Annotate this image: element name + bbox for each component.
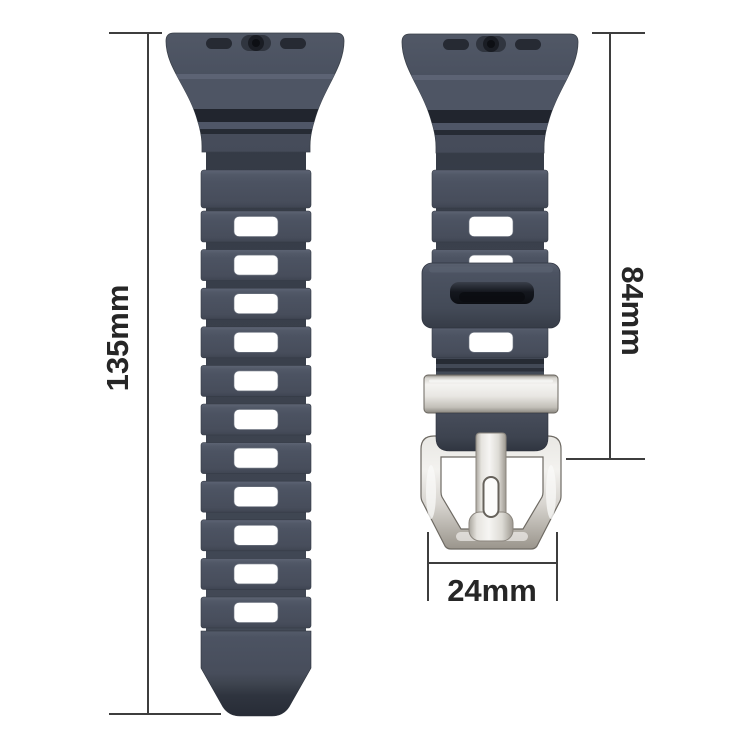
long-strap-segments bbox=[201, 211, 311, 628]
strap-segment bbox=[201, 365, 311, 396]
lug-slot bbox=[515, 39, 541, 50]
strap-hole bbox=[234, 487, 278, 507]
keeper-slot-shadow bbox=[459, 292, 525, 302]
lug-button-pin bbox=[487, 40, 495, 48]
dimension-short-strap: 84mm bbox=[566, 33, 650, 459]
lug-slot bbox=[443, 39, 469, 50]
strap-segment bbox=[201, 250, 311, 281]
keeper-top-bevel bbox=[429, 267, 553, 273]
strap-segment bbox=[201, 520, 311, 551]
strap-hole bbox=[234, 525, 278, 545]
buckle-arm-highlight bbox=[546, 465, 556, 519]
strap-segment bbox=[201, 481, 311, 512]
strap-segment bbox=[201, 558, 311, 589]
buckle-arm-highlight bbox=[426, 465, 436, 519]
lug-slot bbox=[280, 38, 306, 49]
strap-segment bbox=[201, 288, 311, 319]
metal-bar-highlight bbox=[429, 380, 553, 383]
long-strap-tip bbox=[201, 631, 311, 716]
strap-segment bbox=[201, 443, 311, 474]
short-strap bbox=[392, 34, 588, 413]
strap-segment bbox=[432, 327, 548, 358]
dimension-label-short-strap: 84mm bbox=[615, 266, 650, 356]
strap-segment bbox=[201, 327, 311, 358]
metal-bar bbox=[424, 375, 558, 413]
short-strap-lug-ridges bbox=[392, 75, 588, 135]
diagram-canvas: 135mm 84mm 24mm bbox=[0, 0, 750, 750]
strap-hole bbox=[234, 448, 278, 468]
strap-hole bbox=[234, 294, 278, 314]
lug-button-pin bbox=[252, 39, 260, 47]
strap-segment bbox=[432, 211, 548, 242]
long-strap bbox=[150, 33, 362, 716]
strap-segment bbox=[432, 170, 548, 208]
strap-hole bbox=[234, 564, 278, 584]
dimension-label-band-width: 24mm bbox=[447, 573, 537, 608]
long-strap-lug-ridges bbox=[150, 74, 362, 134]
strap-hole bbox=[234, 332, 278, 352]
strap-groove bbox=[436, 359, 544, 364]
buckle-prong bbox=[469, 433, 513, 541]
strap-hole bbox=[469, 217, 513, 237]
strap-segment bbox=[201, 404, 311, 435]
prong-slot bbox=[484, 477, 499, 517]
strap-segment bbox=[201, 211, 311, 242]
strap-segment bbox=[201, 170, 311, 208]
strap-hole bbox=[234, 410, 278, 430]
strap-hole bbox=[469, 332, 513, 352]
strap-hole bbox=[234, 217, 278, 237]
strap-segment bbox=[201, 597, 311, 628]
strap-hole bbox=[234, 603, 278, 623]
strap-hole bbox=[234, 255, 278, 275]
strap-hole bbox=[234, 371, 278, 391]
buckle bbox=[421, 413, 561, 549]
strap-groove bbox=[436, 368, 544, 372]
watch-band-dimension-diagram: 135mm 84mm 24mm bbox=[0, 0, 750, 750]
keeper-loop bbox=[422, 263, 560, 328]
dimension-label-long-strap: 135mm bbox=[100, 285, 135, 392]
lug-slot bbox=[206, 38, 232, 49]
